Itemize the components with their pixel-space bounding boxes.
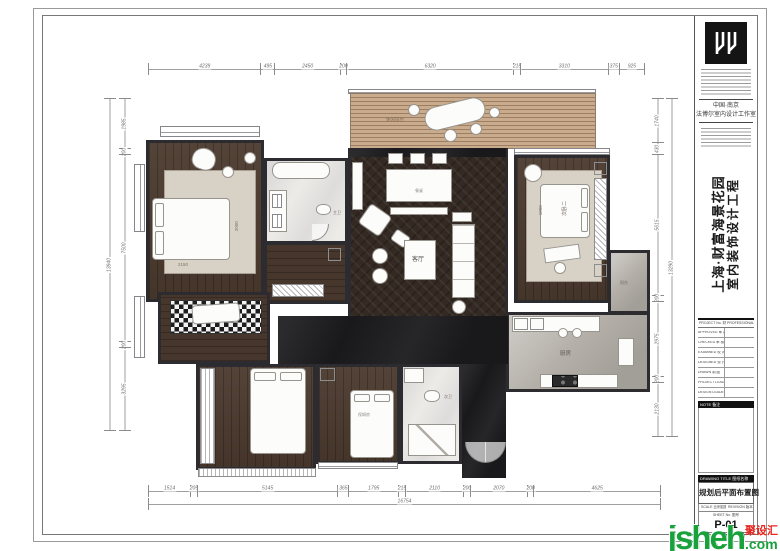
field-header-left: PROJECT No. 财富海景 <box>698 320 726 327</box>
fridge <box>618 338 634 366</box>
title-block-row: DRAWN 制 图 <box>698 368 754 378</box>
title-block-row: EXAMINED 校 对 <box>698 348 754 358</box>
ottoman <box>222 166 234 178</box>
scale-label: SCALE 比例如图 <box>699 504 726 511</box>
shower <box>408 424 456 456</box>
studio-region: 中国·南京 <box>695 102 757 111</box>
pillow <box>254 372 276 381</box>
studio-logo <box>705 22 747 64</box>
pillow <box>155 231 164 255</box>
sink <box>558 328 568 338</box>
dining-chair <box>388 153 403 164</box>
dim-row-bottom-total: 16754 <box>148 498 661 510</box>
pillow <box>374 394 390 402</box>
dim-row-top: 4239495245020063202153310375925 <box>148 63 645 75</box>
drawing-title-bar: DRAWING TITLE 图纸名称 <box>698 475 754 482</box>
title-block-row: PROJECT LEADER 项目负责人 <box>698 378 754 388</box>
drawing-title: 规划后平面布置图 <box>698 482 754 504</box>
bay-window <box>198 468 316 477</box>
pillow <box>155 203 164 227</box>
room-label-service-balcony: 阳台 <box>620 280 628 285</box>
sofa-side-table <box>452 212 472 222</box>
sofa-side-table <box>452 300 466 314</box>
cabinet <box>514 318 528 330</box>
title-block-row: CHECKED 审 核 <box>698 338 754 348</box>
toilet <box>316 204 331 215</box>
chaise <box>191 302 240 324</box>
wardrobe <box>200 368 215 464</box>
room-label-nanny: 保姆房 <box>358 412 370 417</box>
bathtub <box>272 162 330 179</box>
pouf <box>408 104 420 116</box>
dim-col-right: 1740430561520029752002130 <box>652 98 664 437</box>
note-bar: NOTE 备注 <box>698 401 754 408</box>
sink <box>272 214 282 228</box>
pouf <box>470 123 482 135</box>
divider <box>699 122 753 123</box>
revision-label: REVISION 版本 <box>726 504 753 511</box>
room-label-bedroom2: 次卧二 <box>563 201 568 216</box>
window <box>134 164 145 232</box>
dining-chair <box>432 153 447 164</box>
wardrobe <box>594 178 607 260</box>
window <box>134 296 145 358</box>
key-plan-box <box>698 408 754 473</box>
pouf <box>372 268 388 284</box>
address-text-block <box>701 69 751 95</box>
window <box>318 462 398 469</box>
watermark-com: .com <box>745 537 778 551</box>
desk-chair <box>554 262 566 274</box>
bed2-dim: 1800 <box>539 205 544 215</box>
bed-dim-depth: 2000 <box>235 221 240 231</box>
dim-col-left-total: 13940 <box>104 98 116 431</box>
pouf <box>372 248 388 264</box>
title-block-row: DESIGN LEADER 设计负责人 <box>698 388 754 398</box>
pouf <box>444 129 457 142</box>
drawing-sheet: 4239495245020063202153310375925 15142055… <box>0 0 780 551</box>
room-label-living: 客厅 <box>412 257 424 263</box>
logo-monogram-icon <box>711 28 741 58</box>
room-label-kitchen: 厨房 <box>560 352 571 358</box>
sink <box>572 328 582 338</box>
room-label-bath2: 次卫 <box>444 394 452 399</box>
site-watermark: jsheh 聚设汇 .com <box>668 525 778 551</box>
title-block: 中国·南京 法博尔室内设计工作室 上海·财富海景花园 室内装饰设计工程 PROJ… <box>694 16 757 533</box>
title-block-row: DESIGNED 设 计 <box>698 358 754 368</box>
tv-feature-wall <box>350 148 506 157</box>
room-label-leisure-balcony: 休闲阳台 <box>386 118 404 123</box>
cabinet <box>328 248 341 261</box>
dim-col-right-total: 13290 <box>666 98 678 437</box>
scale-revision-row: SCALE 比例如图 REVISION 版本 <box>698 504 754 512</box>
pillow <box>280 372 302 381</box>
dining-table: 餐桌 2200*1400 <box>386 169 452 202</box>
room-service-balcony <box>608 250 650 314</box>
nightstand <box>594 162 607 175</box>
stove <box>552 375 578 387</box>
wardrobe <box>272 284 324 297</box>
dining-chair <box>410 153 425 164</box>
project-title-line1: 上海·财富海景花园 <box>711 150 726 318</box>
pillow <box>581 212 588 232</box>
watermark-brand: jsheh <box>668 525 744 551</box>
tv-console <box>352 162 363 210</box>
dining-table-label: 餐桌 <box>415 188 423 193</box>
divider <box>699 99 753 100</box>
sofa <box>452 224 475 298</box>
cabinet <box>530 318 544 330</box>
window <box>160 126 260 137</box>
nightstand <box>594 264 607 277</box>
room-label-master-bath: 主卫 <box>333 210 341 215</box>
dim-row-bottom: 151420551453651795215211020020702004625 <box>148 485 661 497</box>
notes-text-block <box>701 128 751 148</box>
sink <box>272 194 282 208</box>
bed-dim-width: 2150 <box>178 263 188 268</box>
title-block-fields: PROJECT No. 财富海景 PROFESSIONAL 专业 APPROVE… <box>698 318 754 398</box>
vanity <box>404 368 424 383</box>
cabinet <box>320 368 335 381</box>
pouf <box>489 107 500 118</box>
toilet <box>424 390 440 402</box>
project-title-line2: 室内装饰设计工程 <box>726 150 741 318</box>
dim-col-left: 198520075002003295 <box>119 98 131 431</box>
field-header-right: PROFESSIONAL 专业 <box>726 320 754 327</box>
project-title: 上海·财富海景花园 室内装饰设计工程 <box>695 150 757 318</box>
title-block-row: APPROVED 审 定 <box>698 328 754 338</box>
side-table <box>244 152 256 164</box>
armchair <box>524 164 542 182</box>
dining-bench <box>390 207 448 215</box>
corridor <box>278 316 508 364</box>
pillow <box>354 394 370 402</box>
pillow <box>581 188 588 208</box>
window <box>514 148 610 155</box>
studio-name: 法博尔室内设计工作室 <box>695 111 757 120</box>
